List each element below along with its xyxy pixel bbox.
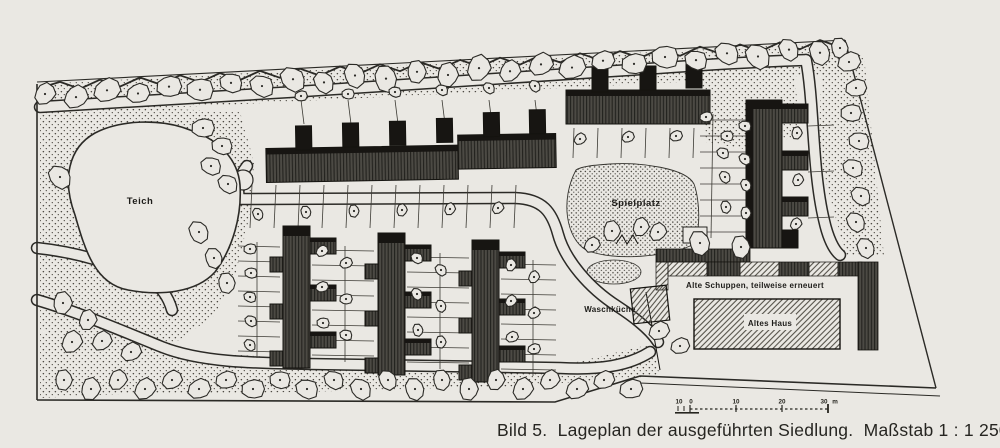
tree-trunk-dot (657, 231, 659, 233)
tree-trunk-dot (440, 305, 442, 307)
roof-ridge (566, 90, 710, 96)
tree-trunk-dot (249, 248, 251, 250)
shed-segment (809, 262, 838, 276)
tree-trunk-dot (675, 135, 677, 137)
plot-line (514, 185, 516, 228)
tree-trunk-dot (795, 223, 797, 225)
scale-unit-label: m (832, 399, 838, 406)
tree-trunk-dot (740, 246, 742, 248)
tree-trunk-dot (198, 388, 200, 390)
plot-line (301, 100, 304, 124)
tree-trunk-dot (627, 136, 629, 138)
tree-trunk-dot (347, 93, 349, 95)
building-wing (270, 304, 283, 319)
plot-line (348, 100, 351, 124)
roof-ridge (472, 240, 499, 250)
building-foot (782, 230, 798, 248)
plot-line (442, 185, 444, 228)
stair-tower (389, 121, 405, 145)
laundry-building (630, 285, 669, 324)
tree-trunk-dot (726, 135, 728, 137)
tree-trunk-dot (533, 348, 535, 350)
roof-ridge (782, 197, 808, 202)
scale-tick-label: 10 (732, 399, 740, 406)
laundry-label: Waschküche (584, 305, 636, 314)
plot-line (466, 185, 468, 228)
plot-line (597, 128, 598, 158)
roof-ridge (405, 245, 431, 249)
building-body (283, 226, 310, 368)
tree-trunk-dot (549, 379, 551, 381)
tree-trunk-dot (757, 55, 759, 57)
plot-line (394, 185, 396, 228)
tree-trunk-dot (394, 91, 396, 93)
tree-trunk-dot (416, 257, 418, 259)
tree-trunk-dot (533, 312, 535, 314)
tree-trunk-dot (199, 89, 201, 91)
roof-ridge (310, 238, 336, 242)
tree-trunk-dot (633, 63, 635, 65)
scale-underline (675, 412, 699, 414)
tree-trunk-dot (468, 388, 470, 390)
building-body (472, 240, 499, 382)
ground-patch-small (587, 260, 641, 284)
roof-ridge (499, 252, 525, 256)
tree-trunk-dot (447, 74, 449, 76)
tree-trunk-dot (305, 211, 307, 213)
tree-trunk-dot (522, 388, 524, 390)
roof-ridge (283, 226, 310, 236)
tree-trunk-dot (385, 78, 387, 80)
stair-tower (529, 110, 545, 134)
tree-trunk-dot (819, 52, 821, 54)
plot-line (238, 291, 280, 292)
plot-line (621, 128, 622, 158)
tree-trunk-dot (416, 71, 418, 73)
shed-strip-east (858, 262, 878, 350)
tree-trunk-dot (230, 82, 232, 84)
plot-line (490, 185, 492, 228)
building-body (378, 233, 405, 375)
tree-trunk-dot (168, 86, 170, 88)
tree-trunk-dot (855, 221, 857, 223)
tree-trunk-dot (510, 264, 512, 266)
stair-tower (342, 123, 358, 147)
tree-trunk-dot (441, 89, 443, 91)
tree-trunk-dot (495, 379, 497, 381)
tree-trunk-dot (440, 341, 442, 343)
building-wing (459, 271, 472, 286)
tree-trunk-dot (797, 179, 799, 181)
tree-trunk-dot (202, 127, 204, 129)
tree-trunk-dot (576, 388, 578, 390)
tree-trunk-dot (279, 379, 281, 381)
tree-trunk-dot (611, 230, 613, 232)
tree-trunk-dot (321, 286, 323, 288)
tree-trunk-dot (509, 70, 511, 72)
building-wing (365, 358, 378, 373)
tree-trunk-dot (261, 85, 263, 87)
building-wing (365, 311, 378, 326)
tree-trunk-dot (664, 56, 666, 58)
tree-trunk-dot (249, 344, 251, 346)
shed-segment (707, 262, 740, 276)
tree-trunk-dot (257, 213, 259, 215)
plot-line (501, 324, 556, 325)
tree-trunk-dot (725, 206, 727, 208)
building-rows-south (270, 226, 525, 382)
plot-line (693, 128, 694, 158)
tree-trunk-dot (354, 74, 356, 76)
tree-trunk-dot (225, 379, 227, 381)
figure-caption: Bild 5. Lageplan der ausgeführten Siedlu… (497, 420, 1000, 441)
tree-trunk-dot (860, 195, 862, 197)
tree-trunk-dot (250, 320, 252, 322)
scanned-page: Teich (0, 0, 1000, 448)
tree-trunk-dot (416, 293, 418, 295)
tree-trunk-dot (510, 300, 512, 302)
tree-trunk-dot (744, 158, 746, 160)
tree-trunk-dot (345, 298, 347, 300)
tree-trunk-dot (63, 379, 65, 381)
plot-line (312, 355, 374, 356)
tree-trunk-dot (497, 207, 499, 209)
tree-trunk-dot (478, 67, 480, 69)
plot-line (407, 287, 469, 288)
plot-line (346, 185, 348, 228)
roof-ridge (499, 346, 525, 350)
tree-trunk-dot (321, 250, 323, 252)
tree-trunk-dot (744, 125, 746, 127)
sheds-label: Alte Schuppen, teilweise erneuert (686, 281, 824, 290)
site-plan: Teich (0, 0, 1000, 448)
tree-trunk-dot (534, 85, 536, 87)
tree-trunk-dot (414, 388, 416, 390)
tree-trunk-dot (679, 345, 681, 347)
tree-trunk-dot (62, 302, 64, 304)
roof-ridge (746, 100, 782, 109)
tree-trunk-dot (345, 334, 347, 336)
plot-line (395, 100, 398, 124)
plot-line (808, 217, 834, 218)
tree-trunk-dot (705, 116, 707, 118)
tree-trunk-dot (441, 379, 443, 381)
tree-trunk-dot (292, 78, 294, 80)
tree-trunk-dot (640, 226, 642, 228)
tree-trunk-dot (699, 242, 701, 244)
tree-trunk-dot (322, 322, 324, 324)
tree-trunk-dot (59, 176, 61, 178)
tree-trunk-dot (401, 209, 403, 211)
old-house-label: Altes Haus (748, 319, 793, 328)
tree-trunk-dot (695, 59, 697, 61)
plot-line (312, 280, 374, 281)
tree-trunk-dot (71, 341, 73, 343)
tree-trunk-dot (440, 269, 442, 271)
building-wing (459, 318, 472, 333)
plot-line (238, 336, 280, 337)
tree-trunk-dot (101, 340, 103, 342)
tree-trunk-dot (579, 138, 581, 140)
roof-ridge (378, 233, 405, 243)
plot-line (370, 185, 372, 228)
tree-trunk-dot (171, 379, 173, 381)
stair-tower (592, 68, 608, 92)
plot-line (238, 321, 280, 322)
tree-trunk-dot (591, 244, 593, 246)
tree-trunk-dot (848, 61, 850, 63)
stair-tower (295, 126, 311, 150)
tree-trunk-dot (300, 95, 302, 97)
tree-trunk-dot (353, 210, 355, 212)
scale-tick-label: 20 (778, 399, 786, 406)
scale-bar: 10 0 10 20 30 m (675, 399, 838, 414)
tree-trunk-dot (488, 87, 490, 89)
plot-line (238, 276, 280, 277)
tree-trunk-dot (839, 47, 841, 49)
tree-trunk-dot (724, 176, 726, 178)
building-row-north (265, 109, 556, 182)
plot-line (573, 128, 574, 158)
tree-trunk-dot (603, 379, 605, 381)
tree-trunk-dot (252, 388, 254, 390)
plot-line (669, 128, 670, 158)
roof-ridge (310, 332, 336, 336)
scale-tick-label: 10 (675, 399, 683, 406)
tree-trunk-dot (796, 132, 798, 134)
tree-trunk-dot (198, 231, 200, 233)
tree-trunk-dot (745, 184, 747, 186)
tree-trunk-dot (323, 81, 325, 83)
tree-trunk-dot (250, 272, 252, 274)
tree-trunk-dot (658, 330, 660, 332)
plot-line (418, 185, 420, 228)
plot-line (322, 185, 324, 228)
tree-trunk-dot (117, 379, 119, 381)
tree-trunk-dot (345, 262, 347, 264)
tree-trunk-dot (745, 212, 747, 214)
tree-trunk-dot (858, 140, 860, 142)
tree-trunk-dot (602, 60, 604, 62)
tree-trunk-dot (726, 52, 728, 54)
tree-trunk-dot (130, 351, 132, 353)
tree-trunk-dot (722, 152, 724, 154)
tree-trunk-dot (360, 388, 362, 390)
stair-tower (436, 118, 452, 142)
tree-trunk-dot (221, 145, 223, 147)
roof-ridge (405, 339, 431, 343)
tree-trunk-dot (226, 282, 228, 284)
scale-tick-label: 30 (820, 399, 828, 406)
tree-trunk-dot (75, 96, 77, 98)
tree-trunk-dot (144, 388, 146, 390)
tree-trunk-dot (137, 92, 139, 94)
tree-trunk-dot (90, 388, 92, 390)
tree-trunk-dot (449, 208, 451, 210)
tree-trunk-dot (533, 276, 535, 278)
tree-trunk-dot (106, 89, 108, 91)
tree-trunk-dot (850, 112, 852, 114)
tree-trunk-dot (44, 93, 46, 95)
building-wing (270, 351, 283, 366)
building-wing (365, 264, 378, 279)
tree-trunk-dot (387, 379, 389, 381)
tree-trunk-dot (333, 379, 335, 381)
plot-line (501, 294, 556, 295)
tree-trunk-dot (227, 183, 229, 185)
tree-trunk-dot (87, 319, 89, 321)
plot-line (298, 185, 300, 228)
plot-line (645, 128, 646, 158)
shed-segment (668, 262, 707, 276)
tree-trunk-dot (630, 388, 632, 390)
building-wing (270, 257, 283, 272)
plot-line (274, 185, 276, 228)
tree-trunk-dot (788, 49, 790, 51)
shed-segment (779, 262, 809, 276)
tree-trunk-dot (865, 247, 867, 249)
tree-trunk-dot (540, 63, 542, 65)
scale-tick-label: 0 (689, 399, 693, 406)
tree-trunk-dot (571, 66, 573, 68)
pond-label: Teich (127, 196, 154, 207)
tree-trunk-dot (855, 87, 857, 89)
tree-trunk-dot (511, 336, 513, 338)
playground-label: Spielplatz (611, 198, 660, 209)
tree-trunk-dot (213, 257, 215, 259)
tree-trunk-dot (417, 329, 419, 331)
roof-ridge (782, 104, 808, 109)
stair-tower (483, 112, 499, 136)
boundary-south-outer (640, 383, 940, 396)
tree-trunk-dot (306, 388, 308, 390)
tree-trunk-dot (210, 165, 212, 167)
tree-trunk-dot (852, 167, 854, 169)
shed-segment (740, 262, 779, 276)
tree-trunk-dot (249, 296, 251, 298)
roof-ridge (782, 151, 808, 156)
